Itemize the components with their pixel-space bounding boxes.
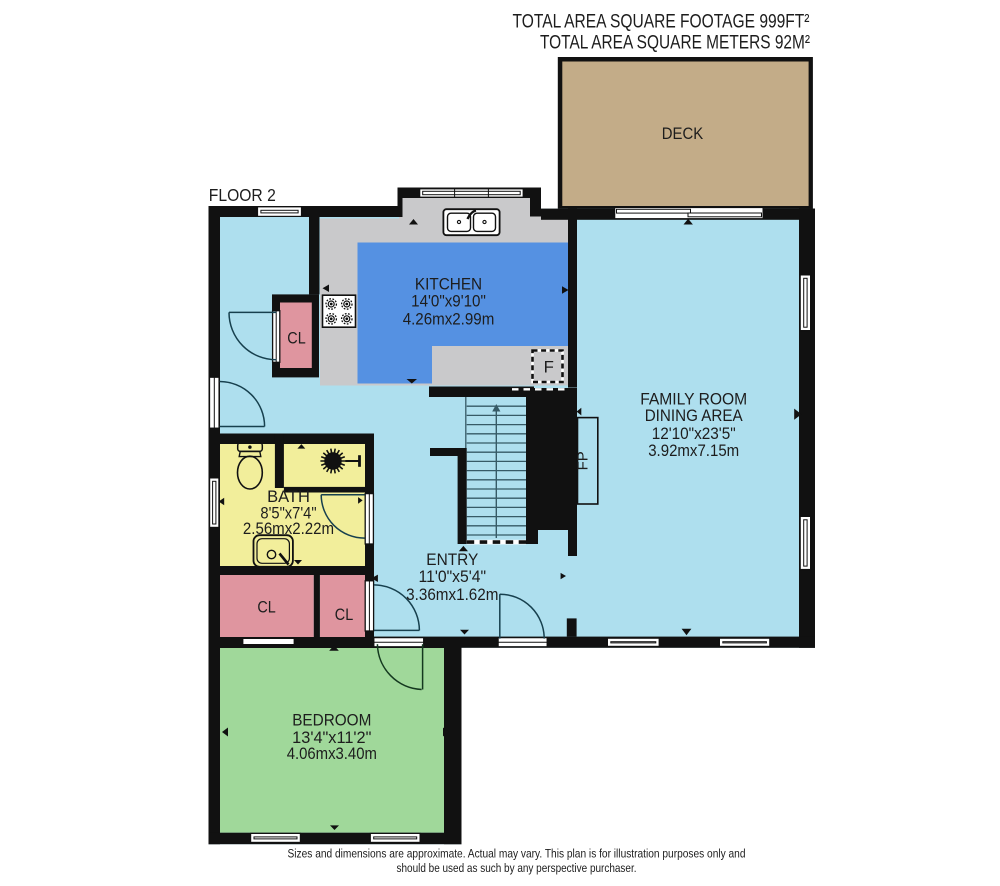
svg-text:DECK: DECK [662,125,703,143]
svg-text:11'0"x5'4": 11'0"x5'4" [419,568,487,586]
svg-text:F: F [544,358,554,377]
svg-text:4.06mx3.40m: 4.06mx3.40m [287,745,377,763]
svg-text:FP: FP [575,451,592,470]
svg-text:4.26mx2.99m: 4.26mx2.99m [403,311,495,329]
svg-text:BATH: BATH [267,488,310,506]
svg-text:FLOOR 2: FLOOR 2 [209,185,276,205]
svg-text:FAMILY ROOM: FAMILY ROOM [640,390,747,408]
svg-text:TOTAL AREA SQUARE FOOTAGE 999F: TOTAL AREA SQUARE FOOTAGE 999FT² [513,11,810,32]
svg-text:CL: CL [335,606,353,624]
svg-text:2.56mx2.22m: 2.56mx2.22m [243,520,334,538]
svg-text:CL: CL [287,330,305,348]
svg-text:3.36mx1.62m: 3.36mx1.62m [406,586,498,604]
svg-text:14'0"x9'10": 14'0"x9'10" [411,292,486,310]
svg-text:DINING AREA: DINING AREA [645,407,743,425]
svg-text:ENTRY: ENTRY [426,551,478,569]
svg-text:should be used as such by any: should be used as such by any perspectiv… [397,861,637,875]
svg-text:3.92mx7.15m: 3.92mx7.15m [648,442,739,460]
svg-text:12'10"x23'5": 12'10"x23'5" [652,425,736,443]
svg-text:CL: CL [257,599,275,617]
svg-text:TOTAL AREA SQUARE METERS 92M²: TOTAL AREA SQUARE METERS 92M² [540,33,810,54]
svg-text:BEDROOM: BEDROOM [292,711,371,729]
svg-text:KITCHEN: KITCHEN [415,276,482,294]
svg-text:Sizes and dimensions are appro: Sizes and dimensions are approximate. Ac… [288,847,746,861]
